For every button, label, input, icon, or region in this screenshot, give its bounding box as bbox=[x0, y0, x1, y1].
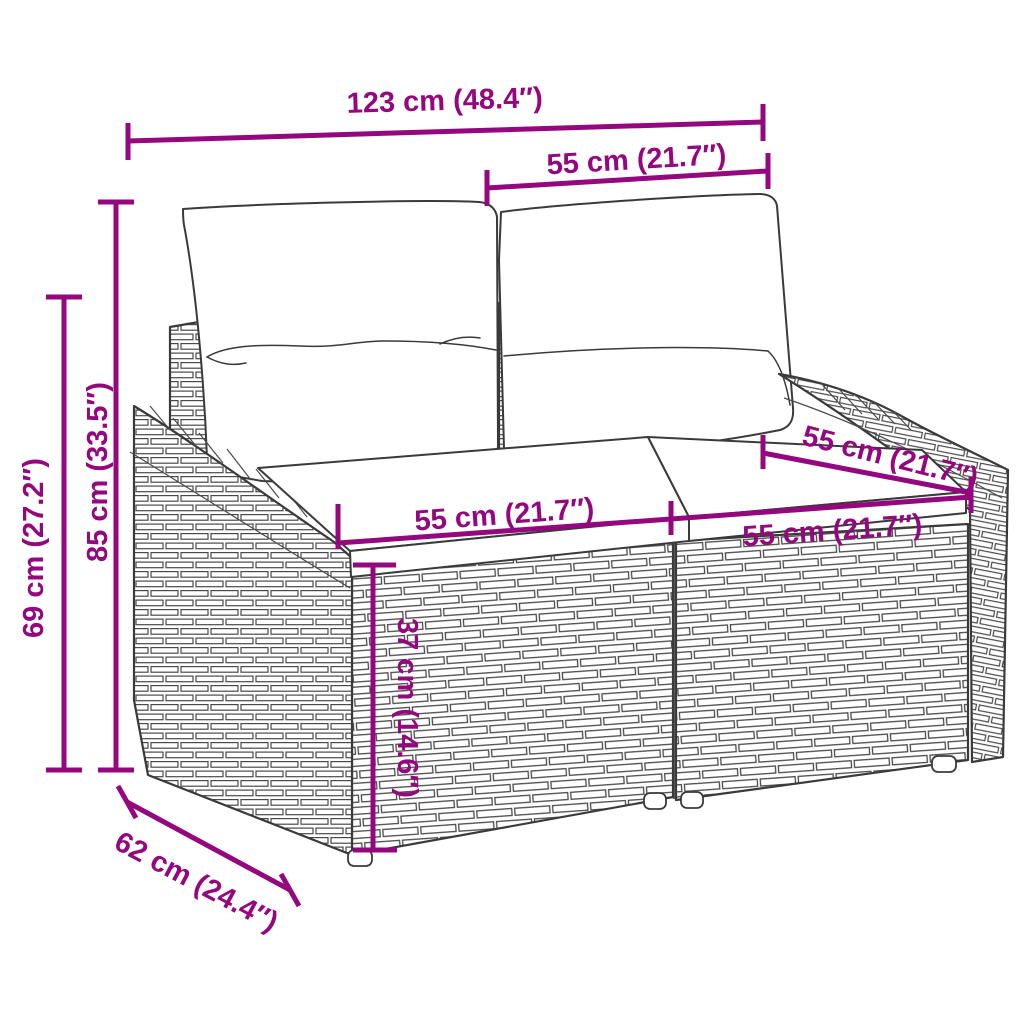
foot bbox=[681, 792, 703, 808]
diagram-canvas: 123 cm (48.4″) 55 cm (21.7″) 85 cm (33.5… bbox=[0, 0, 1024, 1024]
base-right bbox=[676, 524, 968, 800]
back-cushion-right bbox=[499, 194, 793, 461]
dim-label: 85 cm (33.5″) bbox=[82, 382, 114, 562]
dim-total-height: 85 cm (33.5″) bbox=[82, 202, 134, 770]
dimension-diagram: 123 cm (48.4″) 55 cm (21.7″) 85 cm (33.5… bbox=[0, 0, 1024, 1024]
foot bbox=[644, 793, 666, 809]
dim-label: 69 cm (27.2″) bbox=[18, 458, 50, 638]
dim-label: 62 cm (24.4″) bbox=[109, 826, 283, 939]
back-cushion-left bbox=[183, 201, 498, 481]
dim-label: 123 cm (48.4″) bbox=[346, 82, 543, 120]
dim-label: 37 cm (14.6″) bbox=[391, 618, 423, 798]
dim-armrest-height: 69 cm (27.2″) bbox=[18, 297, 82, 770]
foot bbox=[932, 756, 956, 772]
